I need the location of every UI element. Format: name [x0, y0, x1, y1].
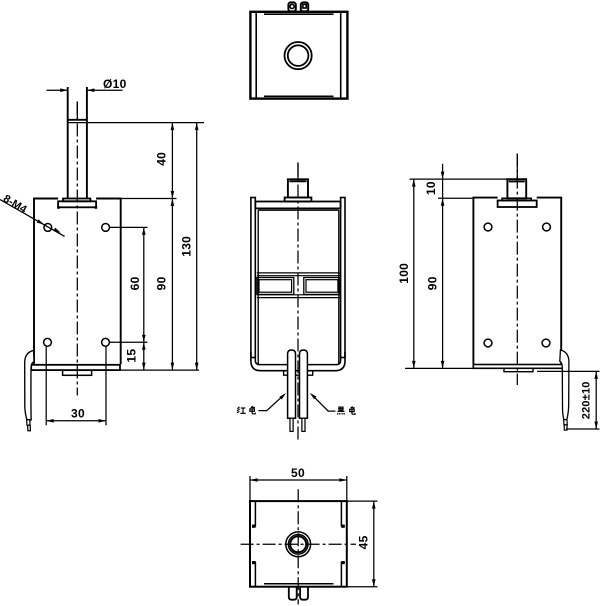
svg-text:45: 45 [357, 535, 371, 549]
svg-text:220±10: 220±10 [580, 381, 592, 419]
svg-text:90: 90 [155, 276, 169, 290]
svg-text:100: 100 [397, 263, 411, 284]
svg-text:50: 50 [291, 466, 305, 480]
svg-text:90: 90 [425, 276, 439, 290]
svg-text:8-M4: 8-M4 [1, 193, 29, 217]
svg-text:30: 30 [71, 406, 85, 420]
svg-text:40: 40 [154, 152, 168, 166]
svg-text:10: 10 [424, 181, 438, 195]
svg-text:60: 60 [128, 276, 142, 290]
svg-text:130: 130 [179, 236, 193, 257]
svg-text:15: 15 [125, 349, 139, 363]
svg-text:Ø10: Ø10 [103, 77, 127, 91]
